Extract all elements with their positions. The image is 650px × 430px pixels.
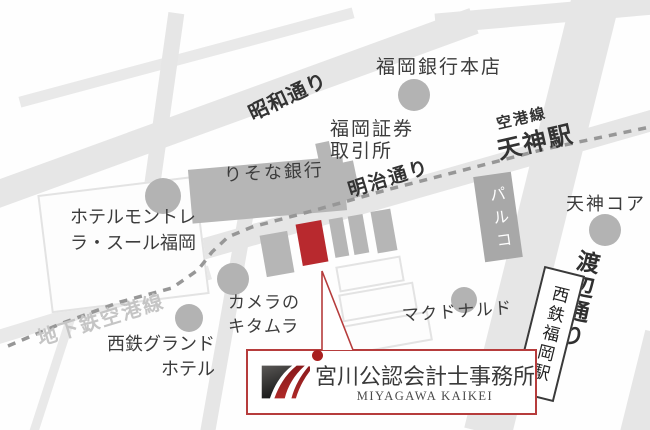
label-hotel-monterey: ホテルモントレ ラ・スール福岡 [36,204,196,256]
label-camera-kitamura-line2: キタムラ [228,317,299,336]
label-parco: パルコ [482,184,515,256]
building-parco: パルコ [473,172,523,262]
label-camera-kitamura: カメラの キタムラ [228,291,300,339]
building-block-3 [348,214,370,255]
label-hotel-monterey-line2: ラ・スール福岡 [70,233,196,253]
label-tenjin-core: 天神コア [566,194,646,216]
building-block-4 [371,209,398,254]
office-names: 宮川公認会計士事務所 MIYAGAWA KAIKEI [315,364,535,403]
label-hotel-monterey-line1: ホテルモントレ [70,207,196,227]
street-top-right-band [435,0,650,34]
landmark-circle-grand-hotel [175,304,203,332]
landmark-circle-tenjin-core [589,214,621,246]
label-camera-kitamura-line1: カメラの [228,293,300,312]
building-block-2 [329,217,350,258]
label-fukuoka-bank: 福岡銀行本店 [376,57,502,80]
label-grand-hotel-line2: ホテル [161,359,215,379]
label-stock-exchange-line1: 福岡証券 [330,119,414,140]
logo-dot-icon [312,350,323,361]
label-stock-exchange: 福岡証券 取引所 [330,119,414,163]
office-name-jp: 宮川公認会計士事務所 [315,364,535,389]
label-grand-hotel-line1: 西鉄グランド [107,334,215,354]
street-bottom-right-corner [614,330,650,430]
landmark-circle-fukuoka-bank [398,79,430,111]
office-card: 宮川公認会計士事務所 MIYAGAWA KAIKEI [246,349,537,415]
office-building-highlight [296,220,329,266]
building-block-1 [260,231,295,277]
office-name-en: MIYAGAWA KAIKEI [357,389,493,403]
miyagawa-logo-mark [261,359,310,405]
access-map: 昭和通り 福岡銀行本店 福岡証券 取引所 空港線 天神駅 りそな銀行 明治通り … [0,0,650,430]
label-nishitetsu-grand-hotel: 西鉄グランド ホテル [90,332,215,382]
label-stock-exchange-line2: 取引所 [330,141,393,162]
